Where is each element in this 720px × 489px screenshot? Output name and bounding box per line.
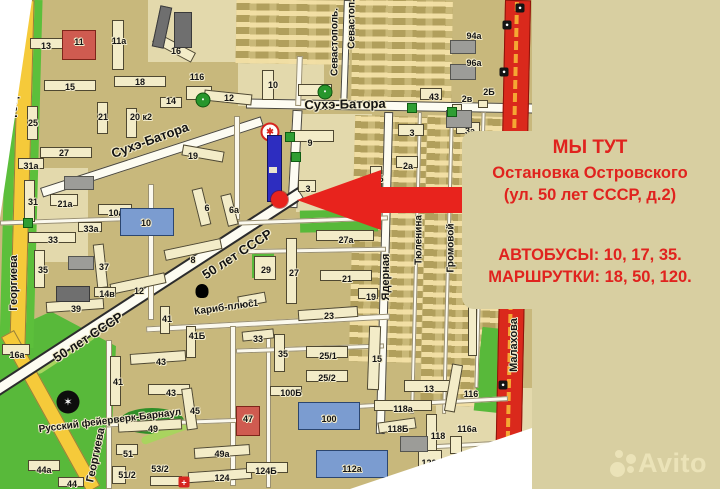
- building-number: 49а: [214, 449, 229, 459]
- building-number: 31: [28, 197, 38, 207]
- building-number: 6а: [229, 205, 239, 215]
- building-number: 20 к2: [130, 112, 152, 122]
- street-label: Сухэ-Батора: [304, 96, 385, 112]
- building-number: 25: [28, 118, 38, 128]
- building-number: 118: [431, 431, 446, 441]
- bus-stop-icon: [407, 103, 417, 113]
- building: [64, 176, 94, 190]
- building-number: 43: [429, 92, 439, 102]
- building-number: 116: [464, 389, 479, 399]
- building-number: 13: [41, 41, 51, 51]
- building-number: 33: [48, 235, 58, 245]
- building-number: 6: [204, 203, 209, 213]
- avito-logo-dot: [626, 454, 636, 464]
- building-number: 124Б: [255, 466, 277, 476]
- city-map: 131111а16151811612142120 к2252719108933а…: [0, 0, 532, 489]
- spacer: [462, 208, 718, 242]
- arrow-icon: [297, 170, 381, 230]
- building-number: 39: [71, 304, 81, 314]
- avito-watermark: Avito: [598, 446, 716, 482]
- building-number: 10: [141, 218, 151, 228]
- stop-location-dot: [271, 191, 288, 208]
- highlighted-building-notch: [269, 167, 277, 173]
- shuttles-line: МАРШРУТКИ: 18, 50, 120.: [462, 269, 718, 286]
- building-number: 10: [268, 80, 278, 90]
- building-number: 27: [289, 268, 299, 278]
- building-number: 16а: [9, 350, 24, 360]
- map-screenshot: 131111а16151811612142120 к2252719108933а…: [0, 0, 720, 489]
- building-number: 33а: [83, 224, 98, 234]
- bus-black-icon: ●: [503, 21, 512, 30]
- bus-stop-icon: [447, 107, 457, 117]
- building-number: 19: [366, 292, 376, 302]
- street-label: Громовой: [446, 223, 457, 272]
- poi-label: Кариб-плюс: [194, 298, 255, 317]
- building-number: 49: [148, 424, 158, 434]
- building-number: 41Б: [189, 331, 205, 341]
- street-label: Малахова: [508, 318, 520, 372]
- building-number: 15: [372, 354, 382, 364]
- building-number: 3: [409, 128, 414, 138]
- avito-logo-dot: [627, 466, 634, 473]
- avito-logo-dot: [615, 450, 623, 458]
- info-text: МЫ ТУТ Остановка Островского (ул. 50 лет…: [462, 134, 718, 290]
- building-number: 8: [190, 255, 195, 265]
- building-number: 53/2: [151, 464, 169, 474]
- building: [450, 436, 462, 454]
- building-number: 21а: [57, 199, 72, 209]
- bus-stop-icon: [291, 152, 301, 162]
- building-number: 12: [224, 93, 234, 103]
- building-number: 27а: [338, 235, 353, 245]
- street-label: Тюленина: [414, 215, 425, 265]
- building-number: 18: [135, 77, 145, 87]
- building-number: 15: [65, 82, 75, 92]
- building-number: 44: [67, 479, 77, 489]
- street-label: Георгиева: [8, 255, 20, 310]
- building-number: 112а: [342, 464, 362, 474]
- building-number: 51: [123, 449, 133, 459]
- bus-black-icon: ●: [500, 68, 509, 77]
- building-number: 45: [190, 406, 200, 416]
- building: [174, 12, 192, 48]
- bus-black-icon: ●: [516, 4, 525, 13]
- building-number: 12: [134, 286, 144, 296]
- building-number: 9: [307, 138, 312, 148]
- building-number: 37: [99, 262, 109, 272]
- building-number: 51/2: [118, 470, 136, 480]
- building-number: 96а: [466, 58, 481, 68]
- building-number: 23: [324, 311, 334, 321]
- building: [56, 286, 90, 302]
- building-number: 27: [59, 148, 69, 158]
- building-number: 43: [156, 357, 166, 367]
- building-number: 29: [261, 265, 271, 275]
- building-number: 35: [38, 265, 48, 275]
- building-number: 19: [188, 151, 198, 161]
- street-label: Севастополь.: [330, 8, 341, 76]
- we-are-here-label: МЫ ТУТ: [462, 138, 718, 157]
- shop-icon: ▪: [196, 93, 211, 108]
- building-number: 33: [253, 334, 263, 344]
- building: [68, 256, 94, 270]
- building-number: 2а: [403, 161, 413, 171]
- avito-wordmark: Avito: [638, 448, 707, 479]
- building-number: 100: [321, 414, 336, 424]
- road: [148, 184, 154, 320]
- building-number: 41: [162, 314, 172, 324]
- building-number: 11: [74, 37, 84, 47]
- building: [478, 100, 488, 108]
- building-number: 25/2: [318, 373, 336, 383]
- buses-line: АВТОБУСЫ: 10, 17, 35.: [462, 247, 718, 264]
- building-number: 25/1: [319, 351, 337, 361]
- building-number: 41: [113, 377, 123, 387]
- building-number: 31а: [23, 161, 38, 171]
- street-label: Ядерная: [380, 254, 392, 301]
- building-number: 2в: [462, 94, 473, 104]
- building-number: 35: [278, 349, 288, 359]
- building-number: 21: [98, 112, 108, 122]
- stop-address: (ул. 50 лет СССР, д.2): [462, 187, 718, 204]
- building-number: 14: [166, 96, 176, 106]
- bus-stop-icon: [23, 218, 33, 228]
- building-number: 43: [166, 388, 176, 398]
- arrow-tail: [378, 187, 472, 213]
- building: [400, 436, 428, 452]
- shop-icon: ▪: [318, 85, 333, 100]
- building-number: 11а: [112, 36, 127, 46]
- building-number: 116а: [457, 424, 477, 434]
- building-number: 13: [424, 384, 434, 394]
- building-number: 94а: [466, 31, 481, 41]
- building: [150, 476, 182, 486]
- fireworks-icon: ✶: [57, 391, 80, 414]
- building-number: 44а: [36, 465, 51, 475]
- avito-logo-dot: [610, 462, 625, 477]
- building-number: 118а: [393, 404, 413, 414]
- bus-stop-icon: [285, 132, 295, 142]
- building-number: 116: [190, 72, 205, 82]
- stop-name: Остановка Островского: [462, 165, 718, 182]
- building-number: 47: [243, 414, 253, 424]
- building-number: 118Б: [388, 424, 409, 434]
- building-number: 100Б: [280, 388, 302, 398]
- building-number: 21: [342, 274, 352, 284]
- pharmacy-cross-icon: +: [179, 477, 190, 488]
- bus-black-icon: ●: [499, 381, 508, 390]
- building-number: 2Б: [483, 87, 494, 97]
- building-number: 124: [214, 473, 229, 483]
- tooth-icon: [196, 284, 209, 298]
- street-label: Севастоп.: [347, 0, 358, 49]
- building: [450, 40, 476, 54]
